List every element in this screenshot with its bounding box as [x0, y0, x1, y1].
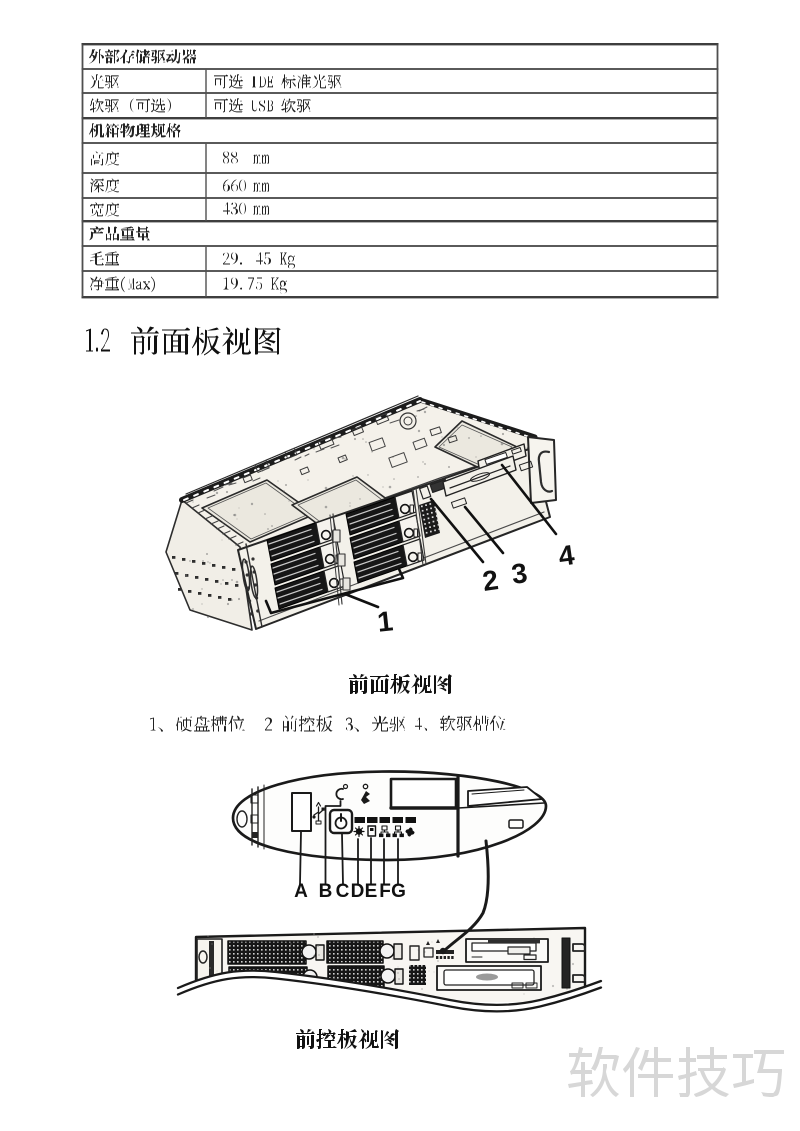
svg-text:D: D: [351, 881, 365, 902]
svg-text:4: 4: [556, 539, 576, 572]
svg-text:2: 2: [480, 564, 500, 597]
svg-text:E: E: [365, 881, 378, 902]
svg-text:G: G: [391, 881, 406, 902]
svg-text:C: C: [336, 881, 350, 902]
svg-text:F: F: [379, 881, 391, 902]
svg-text:B: B: [319, 881, 333, 902]
svg-text:A: A: [294, 881, 308, 902]
svg-text:1: 1: [376, 605, 395, 637]
svg-text:3: 3: [509, 557, 529, 590]
